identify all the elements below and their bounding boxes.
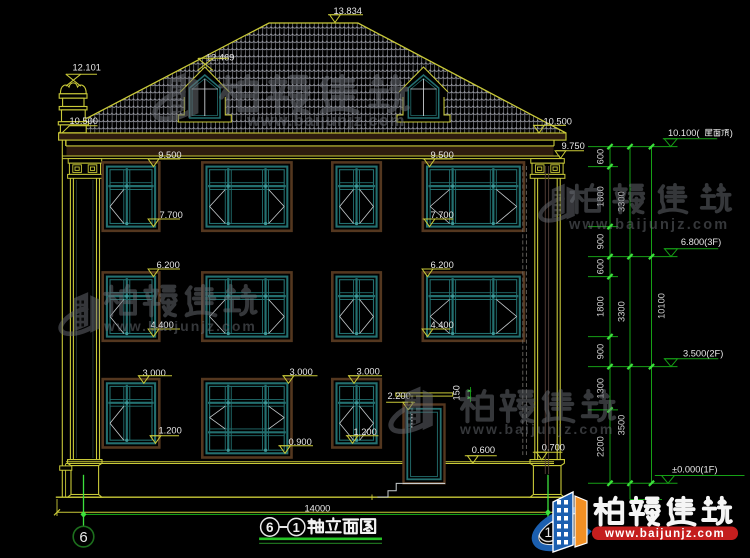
svg-text:900: 900	[596, 344, 606, 360]
svg-text:12.469: 12.469	[206, 53, 234, 63]
svg-text:www.baijunjz.com: www.baijunjz.com	[246, 112, 405, 130]
svg-text:1.200: 1.200	[159, 426, 182, 436]
svg-text:2200: 2200	[596, 436, 606, 457]
svg-text:0.600: 0.600	[472, 445, 495, 455]
svg-text:6.200: 6.200	[431, 260, 454, 270]
svg-text:±0.000(1F): ±0.000(1F)	[672, 465, 717, 475]
svg-text:www.baijunjz.com: www.baijunjz.com	[604, 528, 725, 540]
svg-text:6.800(3F): 6.800(3F)	[681, 237, 721, 247]
svg-text:10100: 10100	[657, 293, 667, 319]
svg-text:3.500(2F): 3.500(2F)	[683, 349, 723, 359]
svg-text:3.000: 3.000	[143, 368, 166, 378]
svg-text:3500: 3500	[617, 415, 627, 436]
svg-text:3300: 3300	[617, 301, 627, 322]
svg-text:9.500: 9.500	[158, 150, 181, 160]
svg-text:www.baijunjz.com: www.baijunjz.com	[103, 318, 257, 334]
svg-text:10.500: 10.500	[70, 116, 98, 126]
svg-text:www.baijunjz.com: www.baijunjz.com	[568, 217, 729, 233]
svg-text:7.700: 7.700	[431, 210, 454, 220]
svg-text:12.101: 12.101	[73, 62, 101, 72]
svg-text:600: 600	[596, 259, 606, 275]
svg-text:1: 1	[293, 520, 300, 535]
svg-text:6: 6	[266, 520, 274, 535]
svg-text:9.750: 9.750	[562, 141, 585, 151]
svg-text:www.baijunjz.com: www.baijunjz.com	[459, 421, 614, 437]
svg-text:7.700: 7.700	[160, 210, 183, 220]
svg-text:600: 600	[596, 149, 606, 165]
svg-text:9.500: 9.500	[431, 150, 454, 160]
svg-text:14000: 14000	[305, 504, 331, 514]
svg-text:4.400: 4.400	[431, 320, 454, 330]
svg-text:0.700: 0.700	[542, 442, 565, 452]
svg-text:): )	[730, 128, 733, 138]
svg-text:10.100(: 10.100(	[668, 128, 700, 138]
svg-text:900: 900	[596, 234, 606, 250]
svg-text:6: 6	[79, 529, 87, 546]
svg-text:3.000: 3.000	[357, 367, 380, 377]
svg-text:1800: 1800	[596, 296, 606, 317]
svg-text:6.200: 6.200	[157, 260, 180, 270]
